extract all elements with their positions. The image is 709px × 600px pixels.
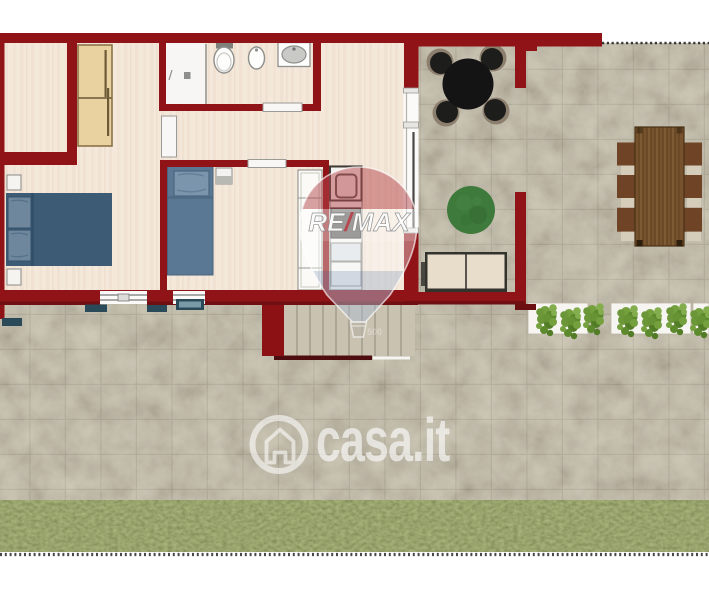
svg-text:500: 500 xyxy=(367,327,382,337)
svg-text:RE/MAX: RE/MAX xyxy=(308,207,411,237)
svg-text:casa.it: casa.it xyxy=(316,407,450,474)
